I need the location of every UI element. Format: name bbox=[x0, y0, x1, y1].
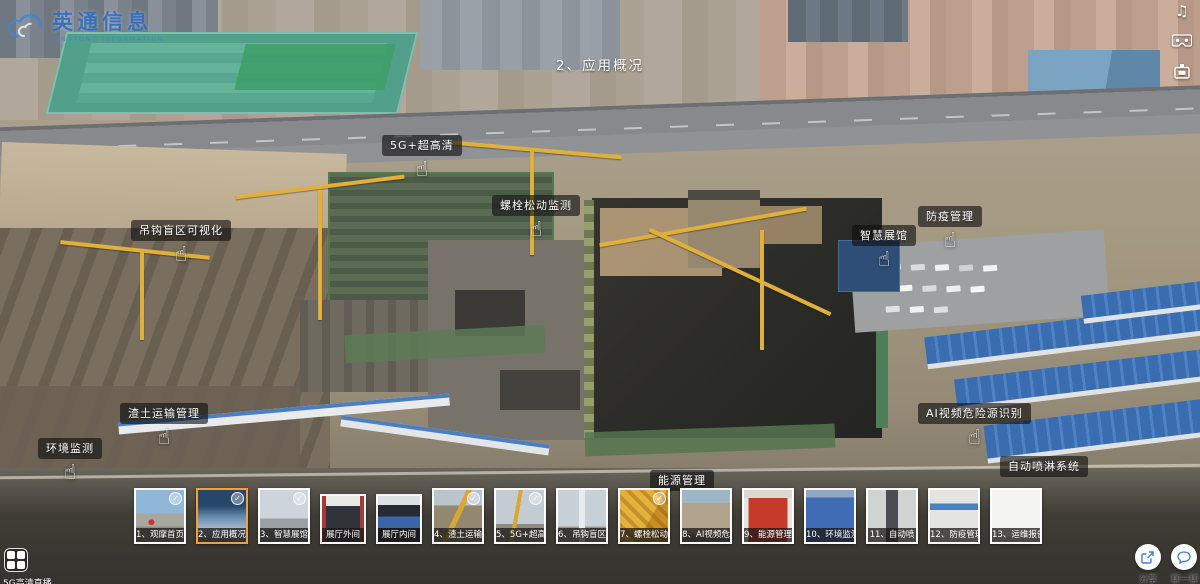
thumbnail-scene-12[interactable]: ✓12、防疫管理 bbox=[928, 488, 980, 544]
vr-goggles-icon[interactable] bbox=[1172, 32, 1192, 51]
bg-towers-right bbox=[788, 0, 908, 42]
share-button[interactable]: 分享 bbox=[1135, 544, 1161, 584]
thumbnail-label: 展厅外间 bbox=[322, 528, 364, 542]
hotspot-label[interactable]: 吊钩盲区可视化 bbox=[131, 220, 231, 241]
bg-scaffold-strip bbox=[584, 200, 594, 438]
hotspot-smart-hall[interactable]: 智慧展馆 ☝ bbox=[852, 225, 916, 270]
thumbnail-label: 12、防疫管理 bbox=[930, 528, 978, 542]
scene-grid-button[interactable] bbox=[4, 548, 28, 572]
hotspot-ai-video[interactable]: AI视频危险源识别 ☝ bbox=[918, 403, 1031, 448]
thumbnail-label: 3、智慧展馆 bbox=[260, 528, 308, 542]
hotspot-environment[interactable]: 环境监测 ☝ bbox=[38, 438, 102, 483]
brand-tagline: YINGTONG INFORMATION bbox=[52, 35, 164, 43]
brand-text-block: 英通信息 YINGTONG INFORMATION bbox=[52, 12, 164, 43]
thumbnail-hall-inner[interactable]: ✓展厅内间 bbox=[376, 494, 422, 544]
thumbnail-label: 10、环境监测 bbox=[806, 528, 854, 542]
hotspot-label[interactable]: 渣土运输管理 bbox=[120, 403, 208, 424]
share-label: 分享 bbox=[1139, 572, 1157, 584]
hand-pointer-icon[interactable]: ☝ bbox=[64, 462, 77, 483]
thumbnail-scene-8[interactable]: ✓8、AI视频危 bbox=[680, 488, 732, 544]
thumbnail-label: 展厅内间 bbox=[378, 528, 420, 542]
thumbnail-label: 9、能源管理 bbox=[744, 528, 792, 542]
thumbnail-scene-11[interactable]: ✓11、自动喷 bbox=[866, 488, 918, 544]
hand-pointer-icon[interactable]: ☝ bbox=[530, 219, 543, 240]
hotspot-label[interactable]: 防疫管理 bbox=[918, 206, 982, 227]
grid-dot bbox=[7, 551, 15, 559]
check-icon: ✓ bbox=[529, 492, 542, 505]
music-icon[interactable]: ♫ bbox=[1175, 4, 1188, 19]
thumbnail-scene-2[interactable]: ✓2、应用概况 bbox=[196, 488, 248, 544]
crane-mast bbox=[760, 230, 764, 350]
check-icon: ✓ bbox=[467, 492, 480, 505]
hand-pointer-icon[interactable]: ☝ bbox=[175, 244, 188, 265]
check-icon: ✓ bbox=[169, 492, 182, 505]
hotspot-label[interactable]: 5G+超高清 bbox=[382, 135, 462, 156]
grid-dot bbox=[17, 561, 25, 569]
check-icon: ✓ bbox=[293, 492, 306, 505]
thumbnail-scene-1[interactable]: ✓1、观摩首页 bbox=[134, 488, 186, 544]
scene-title: 2、应用概况 bbox=[0, 54, 1200, 74]
brand-name: 英通信息 bbox=[52, 12, 164, 33]
hand-pointer-icon[interactable]: ☝ bbox=[944, 230, 957, 251]
thumbnail-scene-6[interactable]: ✓6、吊钩盲区 bbox=[556, 488, 608, 544]
share-icon[interactable] bbox=[1135, 544, 1161, 570]
thumbnail-label: 11、自动喷 bbox=[868, 528, 916, 542]
thumbnail-scene-9[interactable]: ✓9、能源管理 bbox=[742, 488, 794, 544]
crane-mast bbox=[318, 190, 322, 320]
grid-dot bbox=[7, 561, 15, 569]
thumbnail-label: 6、吊钩盲区 bbox=[558, 528, 606, 542]
hand-pointer-icon[interactable]: ☝ bbox=[878, 249, 891, 270]
hand-pointer-icon[interactable]: ☝ bbox=[415, 159, 428, 180]
thumbnail-scene-7[interactable]: ✓7、螺栓松动 bbox=[618, 488, 670, 544]
thumbnail-scene-3[interactable]: ✓3、智慧展馆 bbox=[258, 488, 310, 544]
thumbnail-scene-10[interactable]: ✓10、环境监测 bbox=[804, 488, 856, 544]
thumbnail-scene-4[interactable]: ✓4、渣土运输 bbox=[432, 488, 484, 544]
cloud-logo-icon bbox=[6, 14, 48, 42]
scene-thumbnail-strip: ✓1、观摩首页 ✓2、应用概况 ✓3、智慧展馆 ✓展厅外间 ✓展厅内间 ✓4、渣… bbox=[134, 488, 1042, 544]
thumbnail-label: 7、螺栓松动 bbox=[620, 528, 668, 542]
hotspot-epidemic[interactable]: 防疫管理 ☝ bbox=[918, 206, 982, 251]
check-icon: ✓ bbox=[231, 492, 244, 505]
hotspot-label[interactable]: 环境监测 bbox=[38, 438, 102, 459]
thumbnail-scene-5[interactable]: ✓5、5G+超高 bbox=[494, 488, 546, 544]
thumbnail-label: 5、5G+超高 bbox=[496, 528, 544, 542]
thumbnail-label: 13、运维报告 bbox=[992, 528, 1040, 542]
hotspot-5g-uhd[interactable]: 5G+超高清 ☝ bbox=[382, 135, 462, 180]
chat-bubble-icon[interactable] bbox=[1171, 544, 1197, 570]
viewer-toolbar: ♫ bbox=[1172, 4, 1192, 83]
thumbnail-label: 4、渣土运输 bbox=[434, 528, 482, 542]
hotspot-sprinkler[interactable]: 自动喷淋系统 bbox=[1000, 456, 1088, 477]
grid-dot bbox=[17, 551, 25, 559]
hotspot-label[interactable]: AI视频危险源识别 bbox=[918, 403, 1031, 424]
hotspot-muck-transport[interactable]: 渣土运输管理 ☝ bbox=[120, 403, 208, 448]
chat-button[interactable]: 聊一聊 bbox=[1171, 544, 1198, 584]
check-icon: ✓ bbox=[653, 492, 666, 505]
hotspot-label[interactable]: 螺栓松动监测 bbox=[492, 195, 580, 216]
minimap-icon[interactable] bbox=[1174, 64, 1190, 83]
hotspot-bolt-monitor[interactable]: 螺栓松动监测 ☝ bbox=[492, 195, 580, 240]
hand-pointer-icon[interactable]: ☝ bbox=[968, 427, 981, 448]
thumbnail-hall-outer[interactable]: ✓展厅外间 bbox=[320, 494, 366, 544]
chat-label: 聊一聊 bbox=[1171, 572, 1198, 584]
thumbnail-scene-13[interactable]: ✓13、运维报告 bbox=[990, 488, 1042, 544]
bottom-left-caption: 5G高清直播 bbox=[3, 576, 52, 584]
panorama-viewer[interactable]: 英通信息 YINGTONG INFORMATION 2、应用概况 ♫ 吊钩盲区可… bbox=[0, 0, 1200, 584]
thumbnail-label: 8、AI视频危 bbox=[682, 528, 730, 542]
bg-rebar-patch bbox=[500, 370, 580, 410]
thumbnail-label: 2、应用概况 bbox=[198, 528, 246, 542]
hotspot-label[interactable]: 自动喷淋系统 bbox=[1000, 456, 1088, 477]
hand-pointer-icon[interactable]: ☝ bbox=[158, 427, 171, 448]
hotspot-label[interactable]: 智慧展馆 bbox=[852, 225, 916, 246]
corner-actions: 分享 聊一聊 bbox=[1135, 544, 1198, 584]
thumbnail-label: 1、观摩首页 bbox=[136, 528, 184, 542]
hotspot-hook-blindzone[interactable]: 吊钩盲区可视化 ☝ bbox=[131, 220, 231, 265]
brand-logo: 英通信息 YINGTONG INFORMATION bbox=[6, 12, 164, 43]
